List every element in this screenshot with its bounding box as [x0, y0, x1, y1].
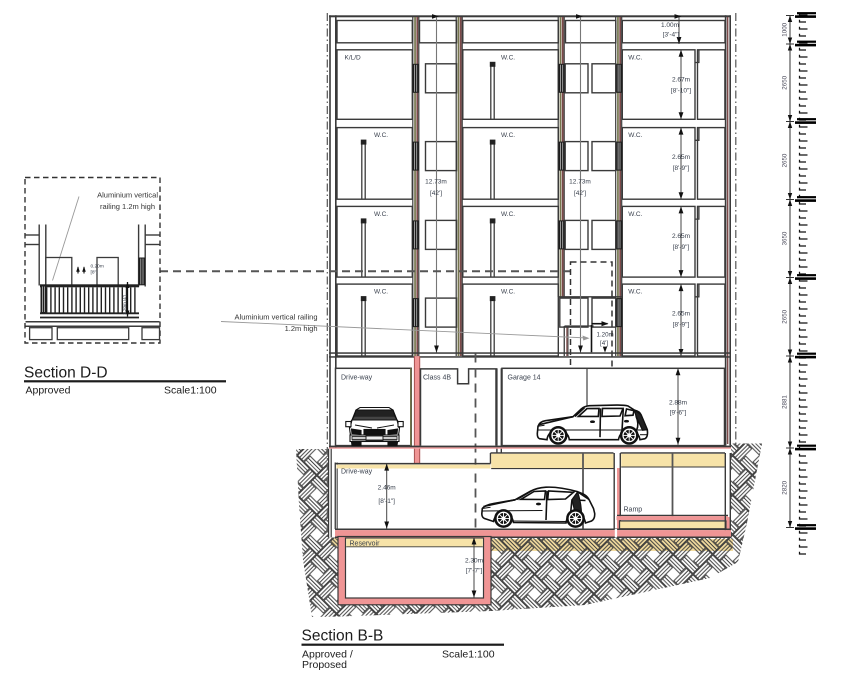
svg-text:3650: 3650 — [782, 231, 789, 245]
svg-text:Class 4B: Class 4B — [423, 375, 451, 382]
svg-text:2.65m: 2.65m — [672, 233, 690, 240]
svg-text:12.73m: 12.73m — [425, 179, 447, 186]
svg-text:W.C.: W.C. — [628, 54, 642, 61]
svg-text:[8'-9"]: [8'-9"] — [673, 165, 690, 172]
svg-text:[8'-9"]: [8'-9"] — [673, 244, 690, 251]
svg-text:railing 1.2m high: railing 1.2m high — [100, 202, 155, 211]
svg-text:2.30m: 2.30m — [465, 558, 483, 565]
svg-text:1.2m high: 1.2m high — [285, 324, 318, 333]
svg-text:W.C.: W.C. — [374, 132, 388, 139]
svg-text:W.C.: W.C. — [501, 132, 515, 139]
svg-text:2650: 2650 — [782, 75, 789, 89]
svg-text:[3'-4"]: [3'-4"] — [663, 32, 680, 39]
svg-text:2881: 2881 — [782, 395, 789, 409]
svg-text:0.20m: 0.20m — [91, 264, 104, 270]
svg-text:Aluminium vertical railing: Aluminium vertical railing — [235, 312, 318, 321]
svg-text:[7'-7"]: [7'-7"] — [466, 568, 483, 575]
svg-text:2650: 2650 — [782, 153, 789, 167]
svg-text:12.73m: 12.73m — [569, 179, 591, 186]
svg-text:Scale1:100: Scale1:100 — [442, 648, 495, 660]
svg-text:W.C.: W.C. — [374, 289, 388, 296]
svg-text:[8'-1"]: [8'-1"] — [378, 498, 395, 505]
svg-text:Drive-way: Drive-way — [341, 375, 373, 382]
svg-text:Approved: Approved — [26, 384, 71, 396]
svg-text:W.C.: W.C. — [628, 211, 642, 218]
svg-text:Reservoir: Reservoir — [350, 541, 381, 548]
svg-text:Proposed: Proposed — [302, 659, 347, 671]
svg-text:Scale1:100: Scale1:100 — [164, 384, 217, 396]
svg-text:2650: 2650 — [782, 309, 789, 323]
svg-text:Ramp: Ramp — [624, 507, 643, 514]
svg-text:Section D-D: Section D-D — [24, 365, 108, 382]
svg-text:[4']: [4'] — [600, 340, 608, 347]
svg-text:Garage 14: Garage 14 — [508, 375, 541, 382]
svg-text:W.C.: W.C. — [501, 289, 515, 296]
svg-text:2.46m: 2.46m — [378, 485, 396, 492]
svg-text:1.20m [4']: 1.20m [4'] — [122, 295, 127, 315]
svg-text:1.00m: 1.00m — [661, 22, 679, 29]
svg-text:1.20m: 1.20m — [597, 332, 614, 339]
svg-text:W.C.: W.C. — [501, 211, 515, 218]
svg-text:Aluminium vertical: Aluminium vertical — [97, 191, 158, 200]
svg-text:W.C.: W.C. — [628, 132, 642, 139]
svg-text:[8"]: [8"] — [91, 270, 98, 276]
svg-text:2820: 2820 — [782, 480, 789, 494]
svg-text:K/L/D: K/L/D — [345, 54, 362, 61]
svg-text:2.65m: 2.65m — [672, 154, 690, 161]
svg-text:2.67m: 2.67m — [672, 76, 690, 83]
svg-text:1000: 1000 — [782, 22, 789, 36]
svg-text:[8'-9"]: [8'-9"] — [673, 322, 690, 329]
svg-text:[9'-6"]: [9'-6"] — [670, 410, 687, 417]
svg-text:[8'-10"]: [8'-10"] — [671, 87, 691, 94]
svg-text:W.C.: W.C. — [501, 54, 515, 61]
svg-text:[42']: [42'] — [430, 190, 442, 197]
svg-text:2.88m: 2.88m — [669, 400, 687, 407]
svg-text:Drive-way: Drive-way — [341, 469, 373, 476]
svg-text:W.C.: W.C. — [374, 211, 388, 218]
svg-text:[42']: [42'] — [574, 190, 586, 197]
svg-text:Section B-B: Section B-B — [302, 628, 384, 645]
svg-text:W.C.: W.C. — [628, 289, 642, 296]
svg-text:2.65m: 2.65m — [672, 311, 690, 318]
